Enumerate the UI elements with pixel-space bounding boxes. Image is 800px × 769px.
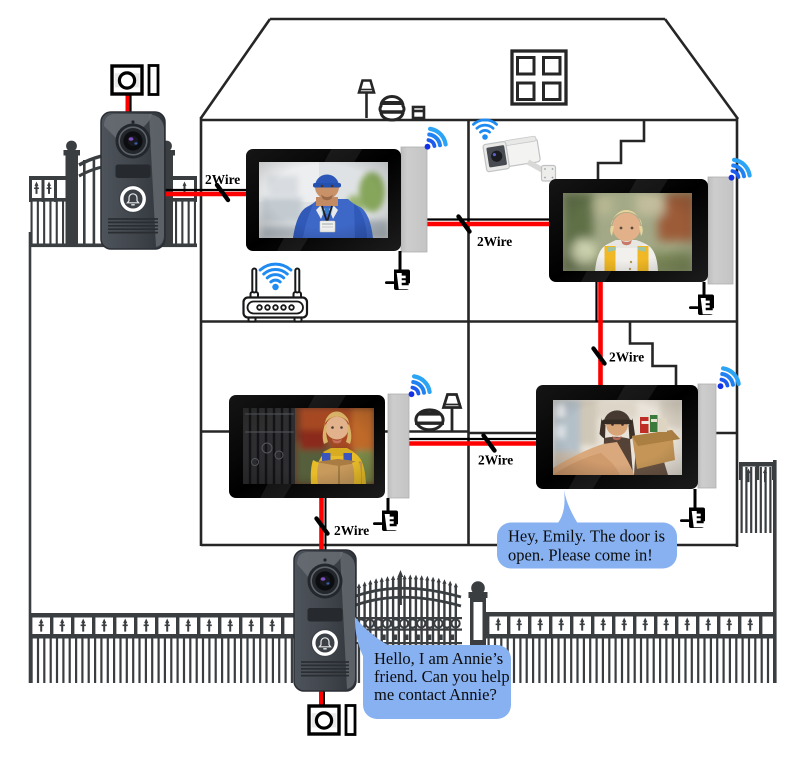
svg-text:friend. Can you help: friend. Can you help (374, 667, 510, 686)
svg-text:2Wire: 2Wire (477, 234, 512, 249)
svg-text:open. Please come in!: open. Please come in! (508, 546, 653, 565)
svg-text:2Wire: 2Wire (478, 453, 513, 468)
svg-text:2Wire: 2Wire (609, 350, 644, 365)
svg-text:me contact Annie?: me contact Annie? (374, 685, 497, 704)
svg-text:Hey, Emily. The door is: Hey, Emily. The door is (508, 527, 665, 546)
svg-text:2Wire: 2Wire (334, 523, 369, 538)
svg-text:Hello, I am Annie’s: Hello, I am Annie’s (374, 649, 503, 668)
svg-text:2Wire: 2Wire (205, 172, 240, 187)
